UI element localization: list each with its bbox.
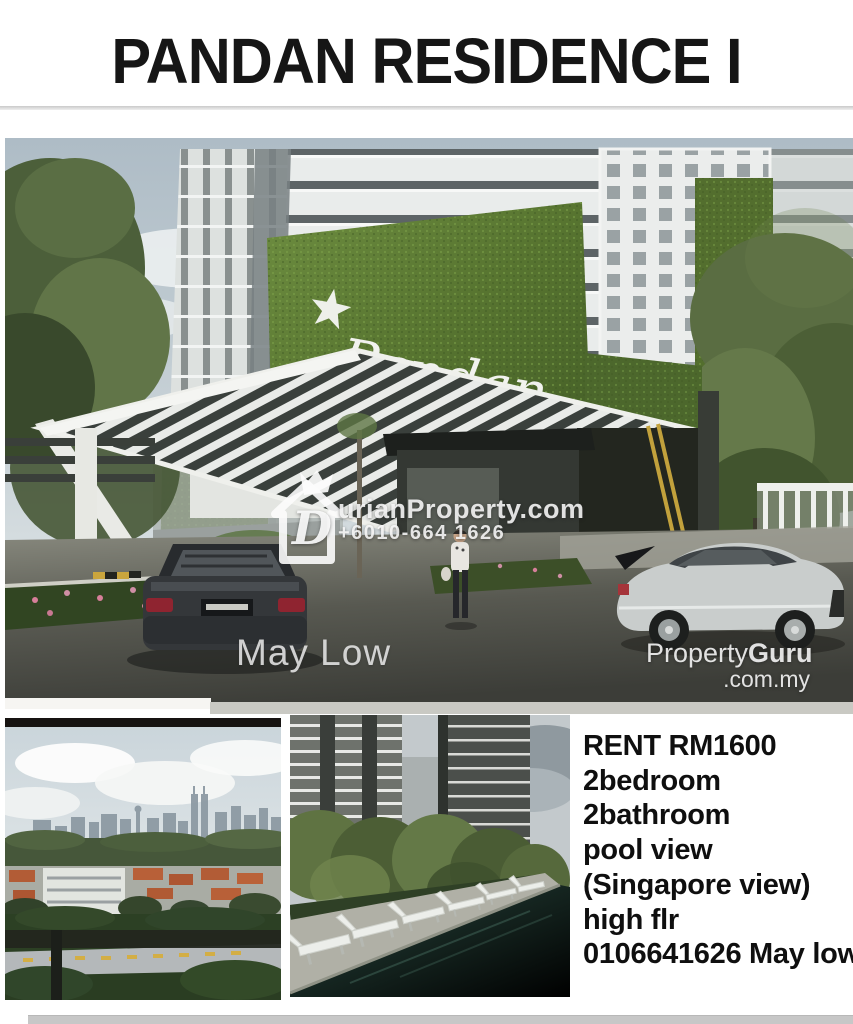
listing-bedrooms: 2bedroom [583, 764, 853, 799]
listing-details: RENT RM1600 2bedroom 2bathroom pool view… [583, 729, 853, 972]
listing-pool-view: pool view [583, 833, 853, 868]
main-photo-illustration: Pandan RESIDENCE II [5, 138, 853, 708]
city-view-photo [5, 718, 281, 1000]
crown-icon [300, 470, 333, 495]
agent-watermark: May Low [236, 632, 391, 674]
photo-edge-strip-left [5, 698, 211, 709]
durian-house-icon: D [270, 468, 344, 576]
listing-flyer: PANDAN RESIDENCE I [0, 0, 853, 1024]
propertyguru-name: PropertyGuru [646, 640, 810, 666]
propertyguru-watermark: PropertyGuru .com.my [646, 640, 810, 692]
durian-phone: +6010-664 1626 [338, 522, 585, 544]
listing-singapore-view: (Singapore view) [583, 868, 853, 903]
striped-curb [93, 571, 141, 579]
listing-bathrooms: 2bathroom [583, 798, 853, 833]
listing-rent: RENT RM1600 [583, 729, 853, 764]
photo-edge-strip-right [210, 702, 853, 714]
pool-view-photo [290, 715, 570, 997]
durian-logo-letter: D [290, 501, 332, 555]
propertyguru-domain: .com.my [646, 666, 810, 692]
durian-watermark: D urianProperty.com +6010-664 1626 [270, 468, 585, 576]
listing-floor: high flr [583, 903, 853, 938]
main-photo: Pandan RESIDENCE II [5, 138, 853, 708]
photo-top-bar [5, 718, 281, 727]
title-divider [0, 106, 853, 110]
durian-brand-text: urianProperty.com [338, 496, 585, 522]
railing-post [51, 930, 62, 1000]
balcony-railing [5, 930, 281, 948]
city-view-illustration [5, 718, 281, 1000]
page-title: PANDAN RESIDENCE I [30, 24, 823, 98]
pool-view-illustration [290, 715, 570, 997]
bottom-gray-bar [28, 1015, 853, 1024]
listing-contact: 0106641626 May low [583, 937, 853, 972]
